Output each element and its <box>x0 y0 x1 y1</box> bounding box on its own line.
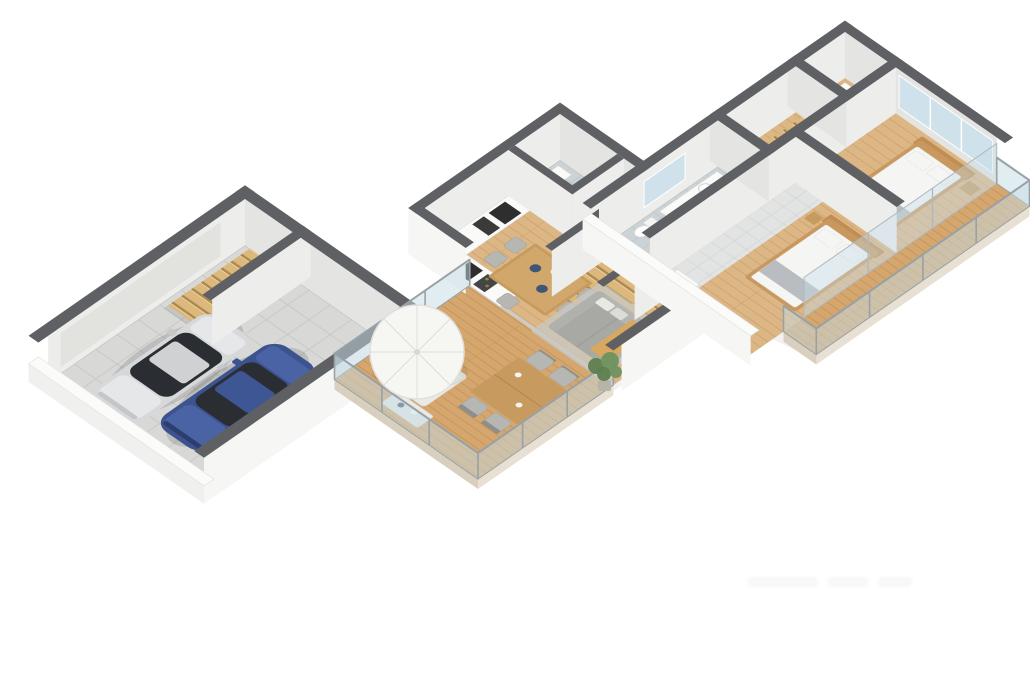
watermark-blob <box>878 577 912 587</box>
watermark-blob <box>748 577 818 587</box>
floorplan-3d-render <box>0 0 1030 686</box>
watermark-blob <box>828 577 868 587</box>
watermark <box>748 570 928 594</box>
plant-pot <box>598 380 611 391</box>
parasol-hub <box>414 349 420 355</box>
